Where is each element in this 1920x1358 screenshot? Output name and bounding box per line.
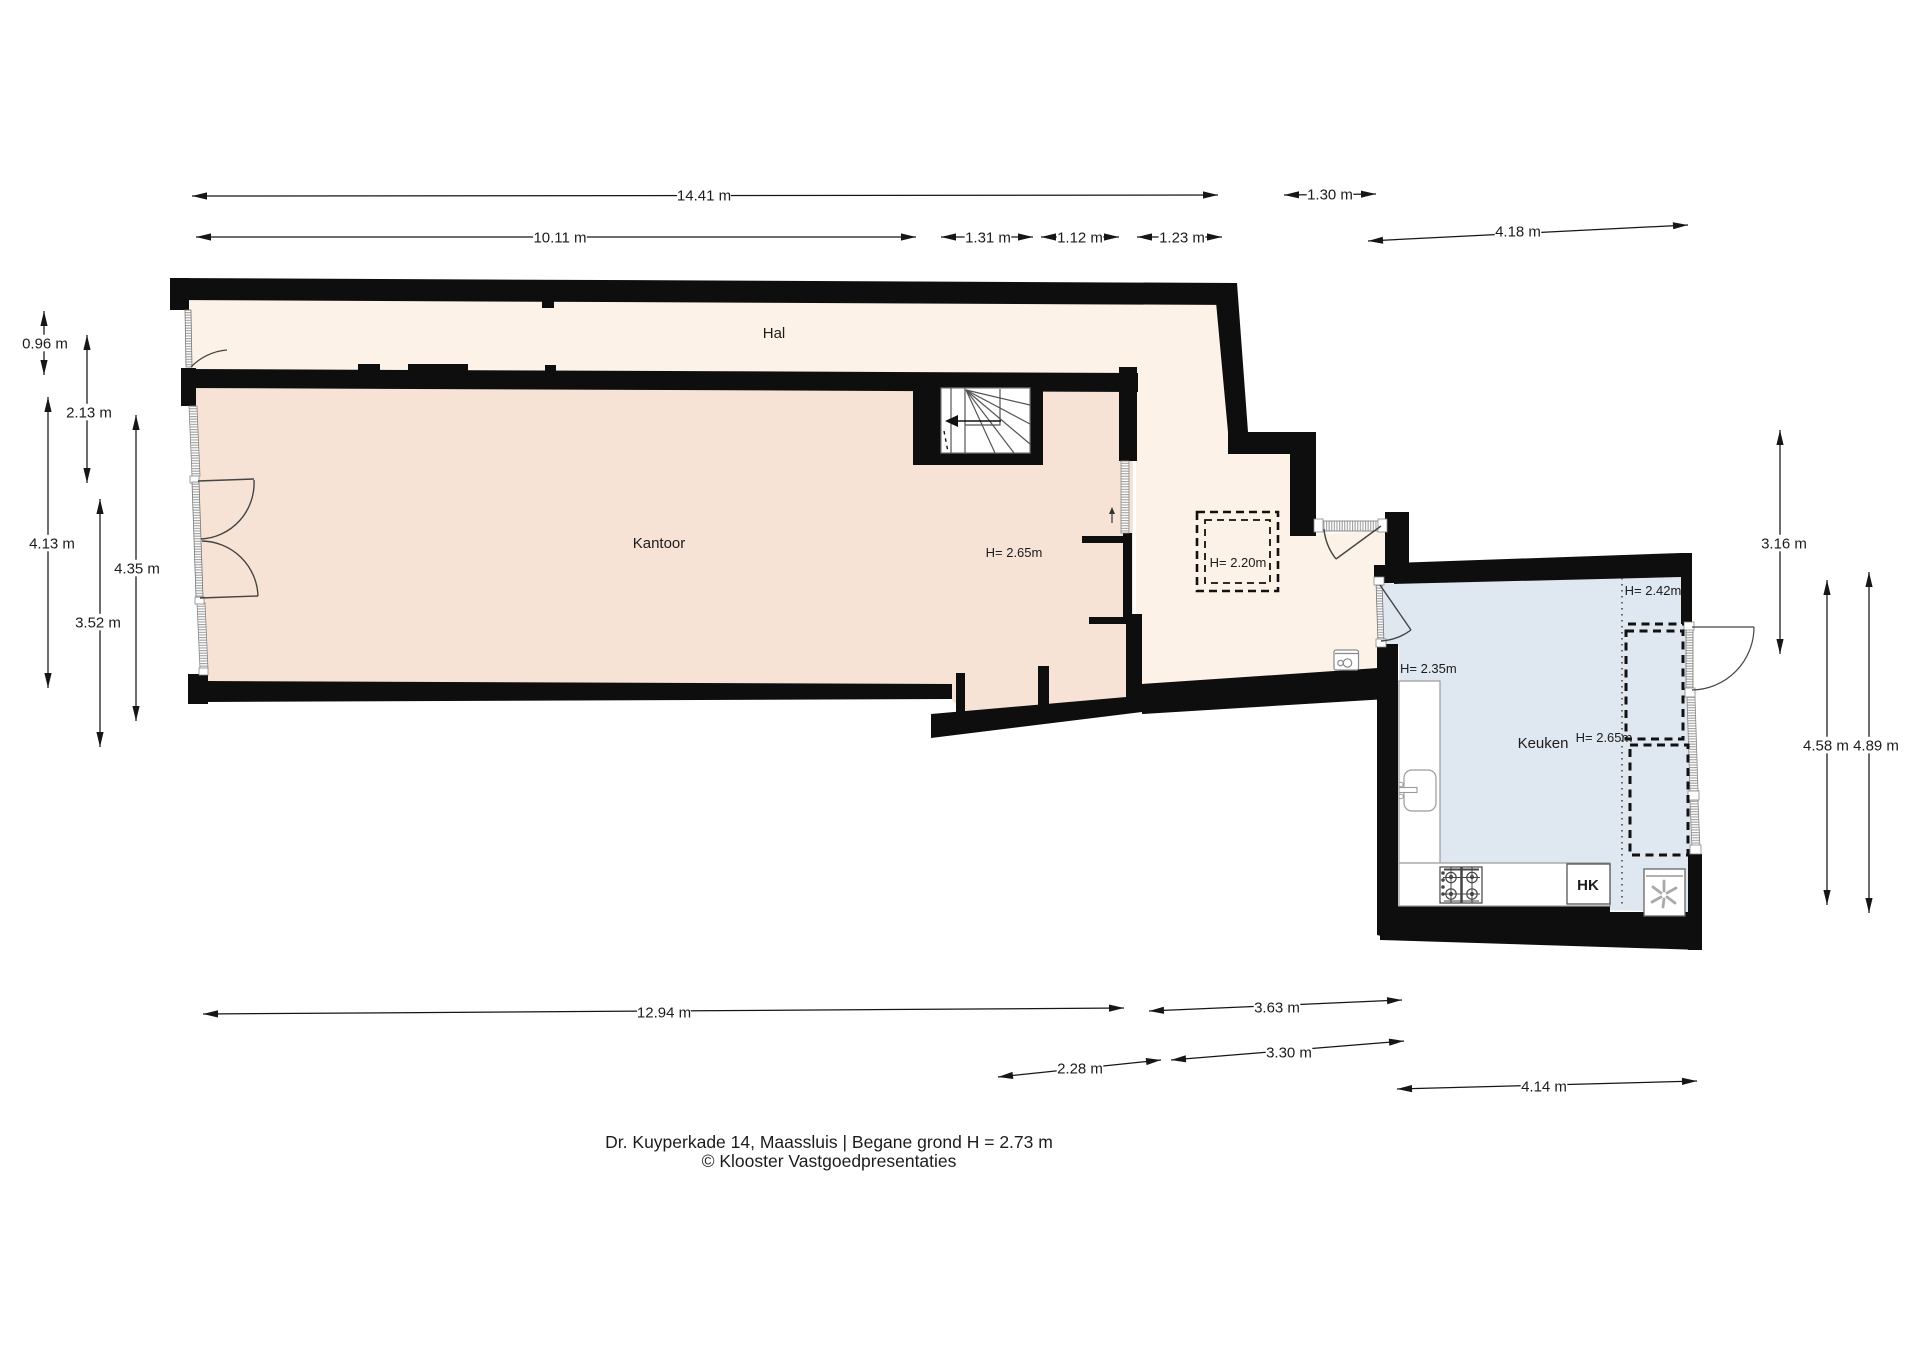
svg-text:3.63 m: 3.63 m — [1254, 999, 1300, 1016]
svg-text:H= 2.65m: H= 2.65m — [1576, 730, 1633, 745]
svg-text:4.58 m 4.89 m: 4.58 m 4.89 m — [1803, 737, 1899, 754]
svg-text:H= 2.35m: H= 2.35m — [1400, 661, 1457, 676]
svg-text:2.13 m: 2.13 m — [66, 404, 112, 421]
svg-text:4.35 m: 4.35 m — [114, 560, 160, 577]
svg-text:1.30 m: 1.30 m — [1307, 186, 1353, 203]
svg-text:Dr. Kuyperkade 14, Maassluis |: Dr. Kuyperkade 14, Maassluis | Begane gr… — [605, 1132, 1053, 1152]
svg-text:2.28 m: 2.28 m — [1057, 1060, 1103, 1077]
svg-text:3.52 m: 3.52 m — [75, 614, 121, 631]
svg-text:10.11 m: 10.11 m — [533, 229, 586, 246]
svg-text:© Klooster Vastgoedpresentatie: © Klooster Vastgoedpresentaties — [702, 1151, 957, 1171]
svg-text:4.14 m: 4.14 m — [1521, 1078, 1567, 1095]
svg-text:12.94 m: 12.94 m — [637, 1004, 691, 1021]
svg-text:Hal: Hal — [763, 325, 786, 342]
svg-text:HK: HK — [1577, 877, 1599, 894]
svg-text:4.18 m: 4.18 m — [1495, 223, 1541, 240]
svg-text:14.41 m: 14.41 m — [677, 187, 731, 204]
svg-text:0.96 m: 0.96 m — [22, 335, 68, 352]
svg-text:3.30 m: 3.30 m — [1266, 1044, 1312, 1061]
svg-text:Keuken: Keuken — [1518, 735, 1569, 752]
svg-text:H= 2.65m: H= 2.65m — [986, 545, 1043, 560]
svg-text:Kantoor: Kantoor — [633, 535, 686, 552]
svg-text:H= 2.42m: H= 2.42m — [1625, 583, 1682, 598]
svg-text:1.31 m: 1.31 m — [965, 229, 1011, 246]
svg-text:1.23 m: 1.23 m — [1159, 229, 1205, 246]
svg-text:4.13 m: 4.13 m — [29, 535, 75, 552]
svg-text:H= 2.20m: H= 2.20m — [1210, 555, 1267, 570]
svg-text:1.12 m: 1.12 m — [1057, 229, 1103, 246]
svg-text:3.16 m: 3.16 m — [1761, 535, 1807, 552]
